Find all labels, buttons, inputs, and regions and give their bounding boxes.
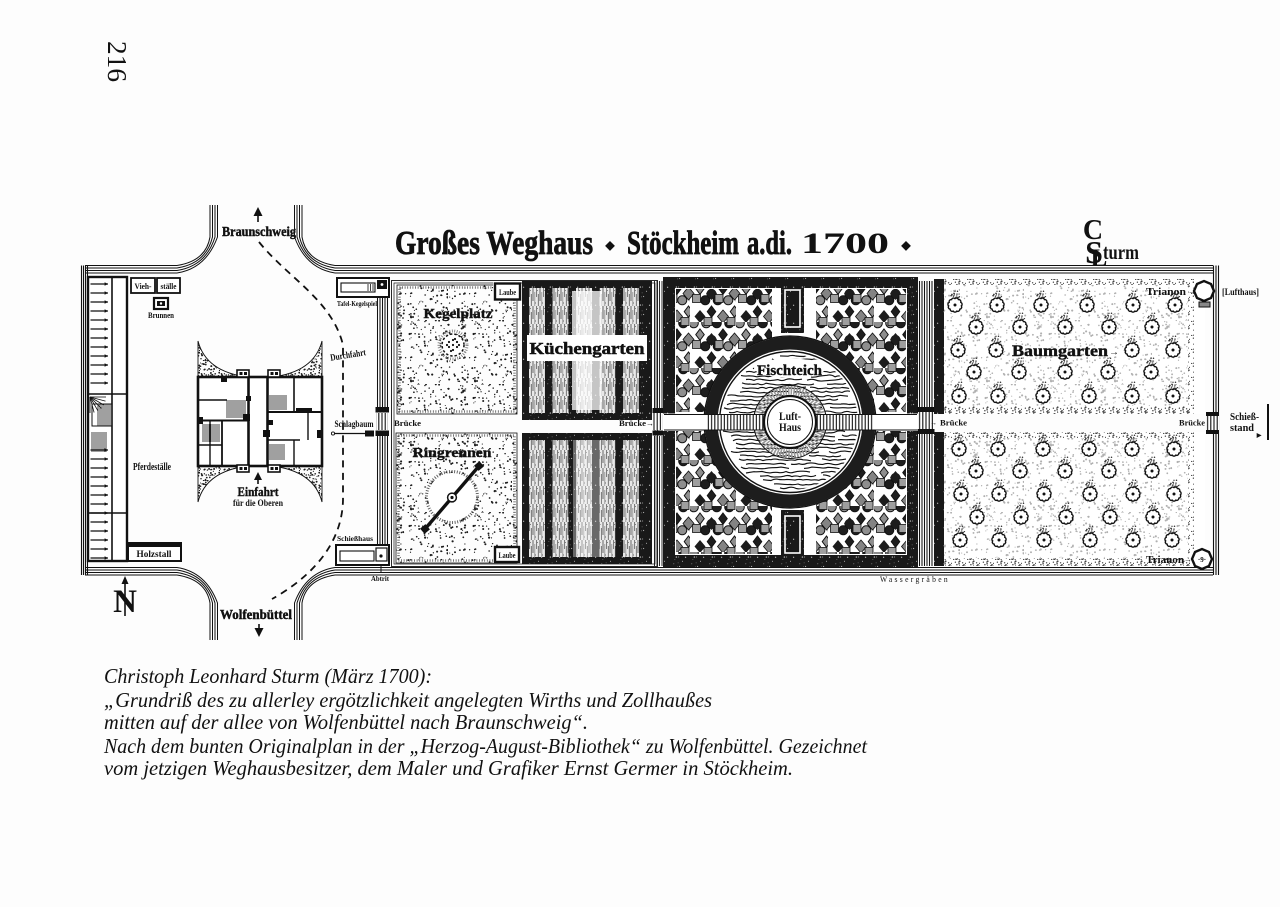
svg-text:Ringrennen: Ringrennen [413, 446, 492, 461]
svg-text:N: N [113, 584, 137, 620]
svg-text:Vieh-: Vieh- [135, 281, 152, 291]
svg-text:Haus: Haus [779, 422, 801, 434]
svg-text:Küchengarten: Küchengarten [530, 339, 646, 358]
svg-text:mitten auf der allee von Wolfe: mitten auf der allee von Wolfenbüttel na… [104, 710, 588, 734]
svg-text:216: 216 [102, 41, 132, 82]
svg-text:Schießhaus: Schießhaus [337, 534, 373, 543]
svg-text:Brunnen: Brunnen [148, 310, 174, 320]
svg-text:1700: 1700 [801, 227, 889, 260]
svg-text:Pferdeställe: Pferdeställe [133, 462, 171, 473]
svg-text:turm: turm [1103, 240, 1139, 264]
svg-text:vom jetzigen Weghausbesitzer,: vom jetzigen Weghausbesitzer, dem Maler … [104, 756, 793, 780]
svg-text:·9·: ·9· [1198, 556, 1206, 564]
svg-text:→: → [930, 419, 937, 427]
svg-text:Wolfenbüttel: Wolfenbüttel [220, 608, 292, 623]
svg-text:[Lufthaus]: [Lufthaus] [1222, 287, 1259, 297]
svg-text:◆: ◆ [604, 238, 615, 252]
svg-text:Abtrit: Abtrit [371, 575, 390, 583]
svg-text:Einfahrt: Einfahrt [238, 484, 280, 499]
svg-text:a.di.: a.di. [747, 225, 792, 262]
svg-text:Wassergräben: Wassergräben [880, 574, 950, 584]
svg-text:Schieß-: Schieß- [1230, 412, 1259, 423]
svg-text:Fischteich: Fischteich [757, 363, 823, 379]
svg-text:Stöckheim: Stöckheim [627, 225, 739, 262]
svg-text:Brücke: Brücke [619, 418, 646, 428]
svg-text:◆: ◆ [900, 238, 911, 252]
svg-text:Trianon: Trianon [1146, 287, 1186, 298]
svg-text:Nach dem bunten Originalplan i: Nach dem bunten Originalplan in der „Her… [103, 734, 868, 758]
svg-text:Laube: Laube [499, 288, 516, 297]
svg-text:Brücke: Brücke [940, 418, 967, 428]
svg-text:„Grundriß des zu allerley ergö: „Grundriß des zu allerley ergötzlichkeit… [104, 688, 712, 712]
svg-text:Großes Weghaus: Großes Weghaus [395, 225, 593, 262]
svg-text:Brücke: Brücke [1179, 418, 1205, 428]
svg-text:Baumgarten: Baumgarten [1012, 343, 1108, 360]
svg-text:▶: ▶ [1256, 432, 1262, 439]
svg-text:Kegelplatz: Kegelplatz [424, 307, 493, 322]
svg-text:Tafel-Kegelspiel: Tafel-Kegelspiel [337, 299, 377, 308]
svg-text:Trianon: Trianon [1146, 555, 1184, 566]
svg-text:Laube: Laube [499, 551, 516, 560]
svg-text:Braunschweig: Braunschweig [222, 225, 296, 240]
svg-text:für die Oberen: für die Oberen [233, 498, 283, 508]
svg-text:Christoph Leonhard Sturm (März: Christoph Leonhard Sturm (März 1700): [104, 664, 432, 688]
svg-text:→: → [1109, 347, 1119, 358]
svg-text:Schlagbaum: Schlagbaum [335, 419, 374, 429]
svg-text:→: → [1184, 555, 1192, 564]
svg-text:→: → [1188, 287, 1196, 296]
svg-text:ställe: ställe [161, 281, 177, 291]
svg-text:→: → [646, 419, 654, 428]
svg-text:Holzstall: Holzstall [137, 549, 173, 559]
svg-text:stand: stand [1230, 423, 1254, 434]
svg-text:Brücke: Brücke [394, 418, 421, 428]
